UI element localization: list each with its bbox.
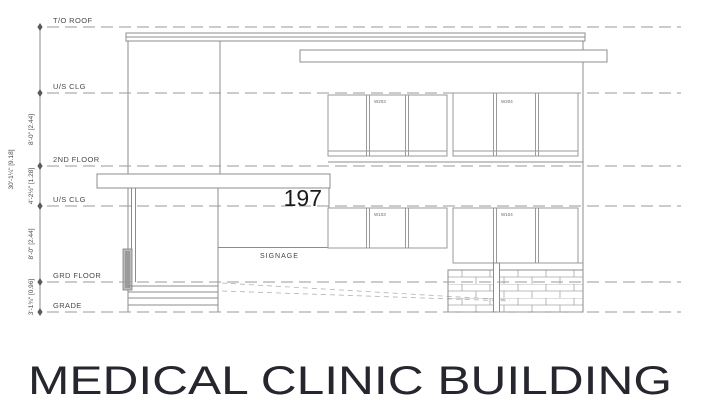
- window-tag-w103: W103: [374, 212, 386, 217]
- brick-veneer: [448, 270, 583, 312]
- window-w203: [328, 95, 447, 156]
- level-label-t-o-roof: T/O ROOF: [53, 16, 92, 25]
- window-tag-w204: W204: [501, 99, 513, 104]
- dim-grd-floor-to-grade: 3'-1¾" [0.96]: [28, 279, 35, 316]
- level-label-grd-floor: GRD FLOOR: [53, 271, 101, 280]
- dim-overall-height: 30'-1¼" [9.18]: [8, 149, 15, 189]
- level-label-grade: GRADE: [53, 301, 82, 310]
- dim-us-clg-to-grd-floor: 8'-0" [2.44]: [28, 228, 35, 259]
- level-lines: [47, 27, 681, 312]
- level-label-us-clg-lower: U/S CLG: [53, 195, 86, 204]
- sheet-title: MEDICAL CLINIC BUILDING: [28, 359, 672, 403]
- storefront-post: [494, 263, 500, 312]
- elevation-sheet: T/O ROOF U/S CLG 2ND FLOOR U/S CLG GRD F…: [0, 0, 701, 417]
- level-label-us-clg-upper: U/S CLG: [53, 82, 86, 91]
- window-w204: [453, 93, 578, 156]
- address-number: 197: [284, 185, 322, 211]
- masonry-base: [448, 263, 583, 312]
- window-groups: [328, 93, 583, 263]
- dim-us-clg-to-2nd-floor: 8'-0" [2.44]: [28, 114, 35, 145]
- roof-fascia-band: [300, 50, 607, 62]
- entry-door: [123, 249, 132, 290]
- level-label-2nd-floor: 2ND FLOOR: [53, 155, 100, 164]
- entry-stairs: [128, 286, 218, 305]
- window-tag-w104: W104: [501, 212, 513, 217]
- elevation-drawing: T/O ROOF U/S CLG 2ND FLOOR U/S CLG GRD F…: [0, 0, 701, 417]
- dim-2nd-floor-to-us-clg: 4'-2½" [1.28]: [27, 168, 35, 205]
- window-w104: [453, 208, 578, 263]
- signage-label: SIGNAGE: [260, 253, 299, 260]
- dimension-string: [37, 23, 42, 316]
- window-w103: [328, 208, 447, 248]
- window-tag-w203: W203: [374, 99, 386, 104]
